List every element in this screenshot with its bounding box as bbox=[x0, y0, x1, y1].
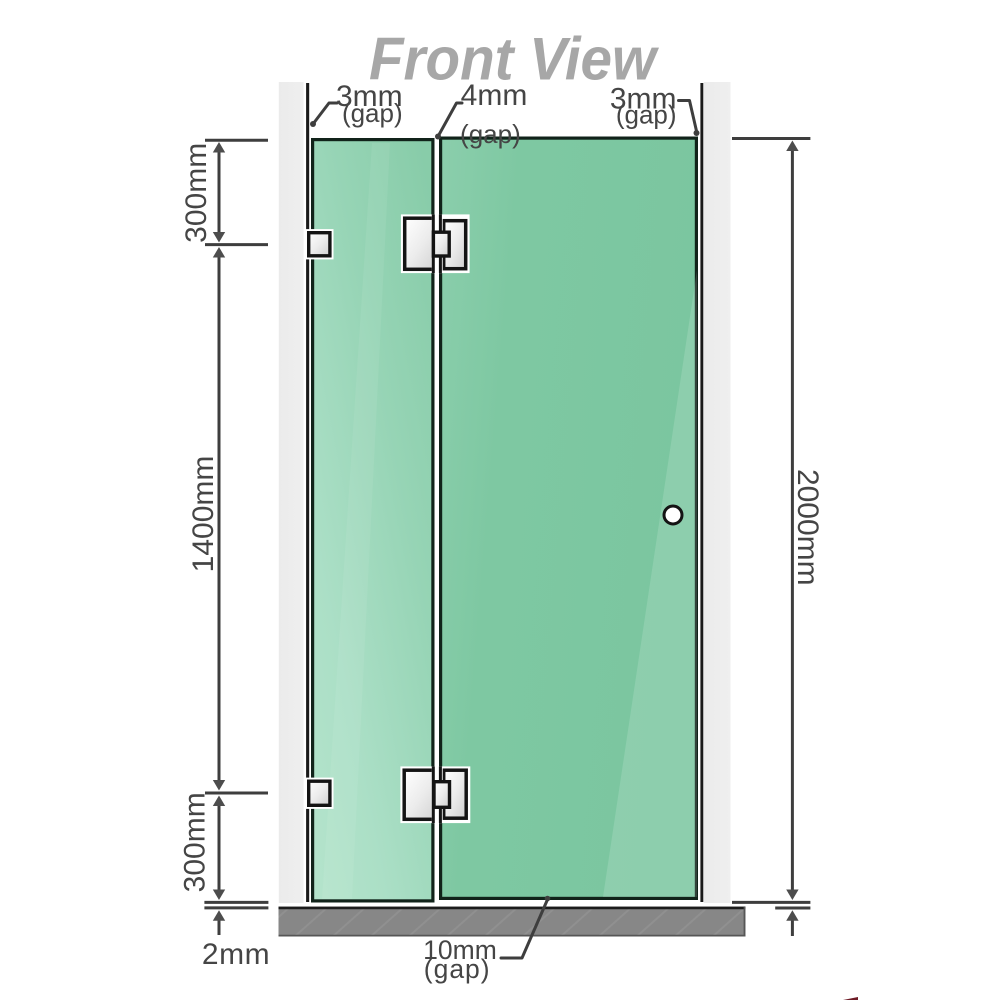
svg-text:(gap): (gap) bbox=[460, 119, 521, 149]
svg-text:1400mm: 1400mm bbox=[187, 456, 220, 573]
svg-text:(gap): (gap) bbox=[342, 98, 403, 128]
svg-text:(gap): (gap) bbox=[616, 100, 677, 130]
svg-text:2mm: 2mm bbox=[202, 938, 270, 971]
svg-text:4mm: 4mm bbox=[461, 79, 528, 112]
svg-text:300mm: 300mm bbox=[179, 792, 212, 892]
svg-text:(gap): (gap) bbox=[424, 954, 491, 984]
svg-text:2000mm: 2000mm bbox=[791, 469, 824, 586]
svg-text:300mm: 300mm bbox=[180, 143, 213, 243]
